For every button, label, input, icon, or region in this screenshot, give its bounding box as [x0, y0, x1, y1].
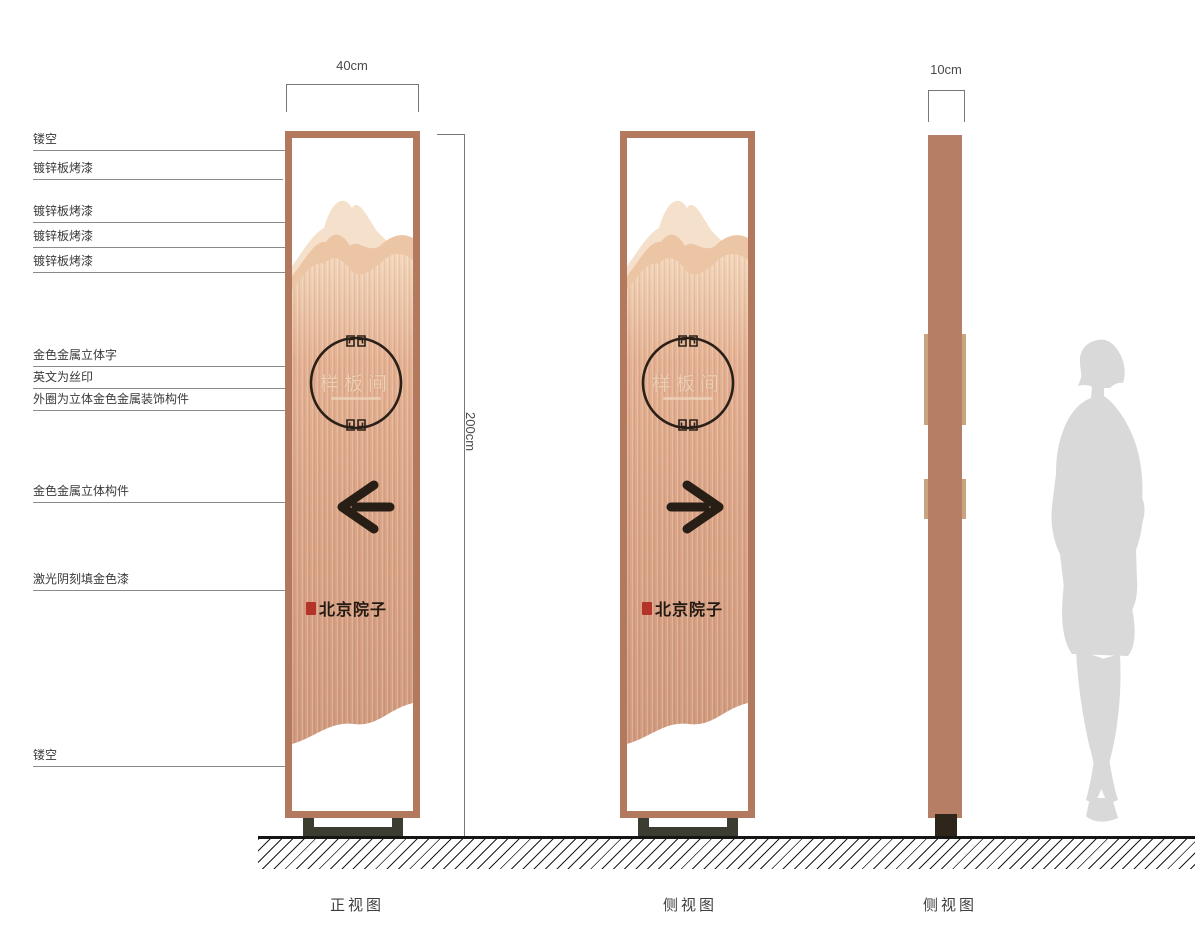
seal-stamp-icon — [642, 602, 652, 615]
dim-bracket-10cm-right — [964, 90, 965, 122]
side-panel-artwork — [627, 138, 748, 811]
callout-hollow-top: 镂空 — [33, 132, 307, 151]
side-profile-bar — [928, 135, 962, 818]
english-silkprint-mark — [663, 397, 713, 400]
callout-galvanized-1: 镀锌板烤漆 — [33, 161, 283, 180]
dim-bracket-40cm — [286, 84, 419, 85]
ground-hatch — [258, 839, 1195, 869]
english-silkprint-mark — [331, 397, 381, 400]
dim-front-width: 40cm — [312, 58, 392, 73]
dim-200cm-tick — [437, 134, 464, 135]
brand-logo-side: 北京院子 — [642, 596, 723, 620]
front-panel-artwork — [292, 138, 413, 811]
brand-text: 北京院子 — [319, 596, 387, 620]
arrow-left-icon — [332, 480, 396, 534]
side-view-panel — [620, 131, 755, 818]
caption-front-view: 正视图 — [292, 894, 422, 915]
callout-galvanized-3: 镀锌板烤漆 — [33, 229, 289, 248]
callout-laser-engrave: 激光阴刻填金色漆 — [33, 572, 287, 591]
dim-200cm-line — [464, 134, 465, 838]
brand-text: 北京院子 — [655, 596, 723, 620]
front-view-panel — [285, 131, 420, 818]
callout-galvanized-4: 镀锌板烤漆 — [33, 254, 293, 273]
caption-side-view-2: 侧视图 — [885, 894, 1015, 915]
callout-gold-ring: 外圈为立体金色金属装饰构件 — [33, 392, 320, 411]
dim-bracket-40cm-left — [286, 84, 287, 112]
dim-side-width: 10cm — [906, 62, 986, 77]
side-profile-foot — [935, 814, 957, 838]
dim-bracket-40cm-right — [418, 84, 419, 112]
plate-text-side: 样板间 — [640, 369, 736, 396]
seal-stamp-icon — [306, 602, 316, 615]
arrow-right-icon — [665, 480, 729, 534]
dim-bracket-10cm — [928, 90, 965, 91]
human-figure-silhouette — [1032, 336, 1177, 836]
dim-bracket-10cm-left — [928, 90, 929, 122]
caption-side-view-1: 侧视图 — [625, 894, 755, 915]
dim-total-height: 200cm — [463, 412, 478, 451]
plate-text-front: 样板间 — [308, 369, 404, 396]
signage-design-drawing: 镂空 镀锌板烤漆 镀锌板烤漆 镀锌板烤漆 镀锌板烤漆 金色金属立体字 英文为丝印… — [0, 0, 1195, 927]
brand-logo-front: 北京院子 — [306, 596, 387, 620]
callout-hollow-bottom: 镂空 — [33, 748, 303, 767]
callout-galvanized-2: 镀锌板烤漆 — [33, 204, 325, 223]
